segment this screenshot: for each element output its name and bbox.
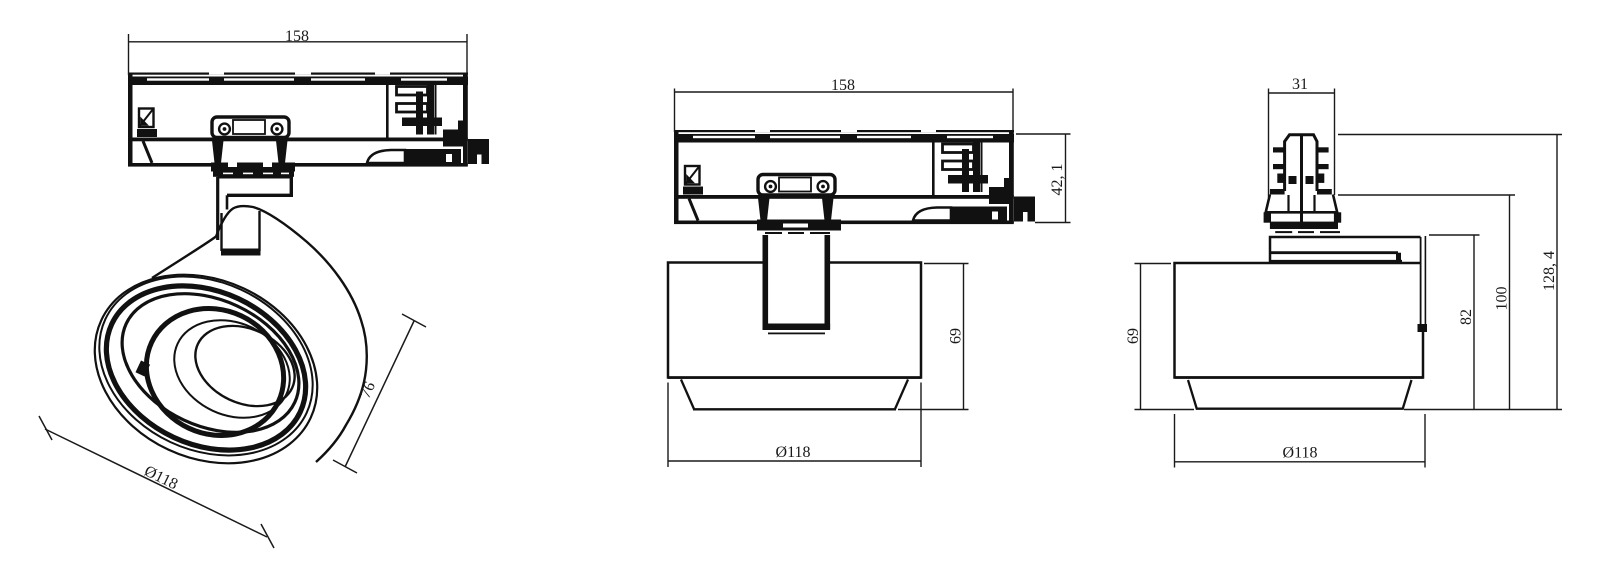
svg-text:128, 4: 128, 4 <box>1541 251 1558 291</box>
svg-text:158: 158 <box>285 28 309 45</box>
svg-text:Ø118: Ø118 <box>142 463 181 494</box>
svg-text:158: 158 <box>831 77 855 94</box>
svg-text:42, 1: 42, 1 <box>1049 164 1066 196</box>
svg-text:82: 82 <box>1458 309 1475 325</box>
svg-text:31: 31 <box>1292 76 1308 93</box>
svg-text:Ø118: Ø118 <box>776 444 811 461</box>
svg-text:69: 69 <box>948 328 965 344</box>
svg-text:Ø118: Ø118 <box>1283 445 1318 462</box>
svg-text:69: 69 <box>1125 328 1142 344</box>
svg-text:100: 100 <box>1494 287 1511 311</box>
